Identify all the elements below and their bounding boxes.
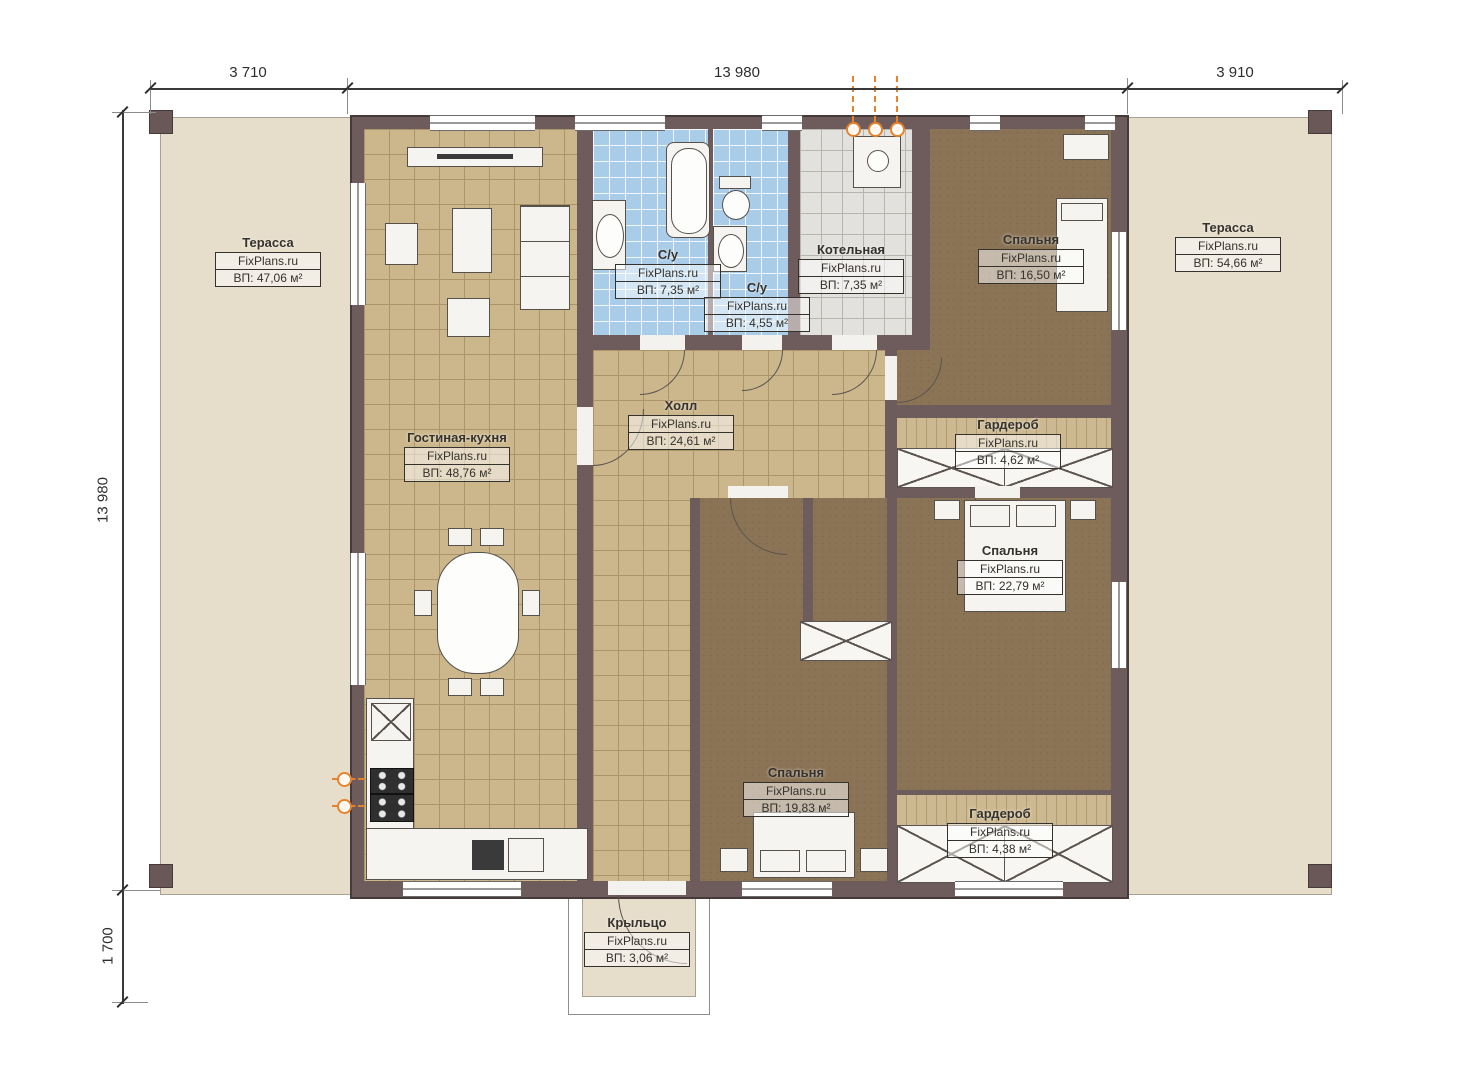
dimension-line-left xyxy=(122,110,124,1004)
window xyxy=(350,553,366,685)
room-name: Спальня xyxy=(743,765,849,780)
dimension-top-3: 3 910 xyxy=(1216,64,1254,81)
door-opening xyxy=(742,335,782,350)
room-area: ВП: 22,79 м² xyxy=(958,578,1062,594)
chair xyxy=(480,528,504,546)
wardrobe-cabinet xyxy=(1063,134,1109,160)
watermark: FixPlans.ru xyxy=(1176,238,1280,255)
window xyxy=(1111,232,1127,330)
room-area: ВП: 3,06 м² xyxy=(585,950,689,966)
coffee-table xyxy=(447,298,490,337)
room-area: ВП: 54,66 м² xyxy=(1176,255,1280,271)
door-opening xyxy=(640,335,685,350)
chair xyxy=(522,590,540,616)
pillow xyxy=(970,505,1010,527)
window xyxy=(350,183,366,305)
terrace-post xyxy=(149,864,173,888)
nightstand xyxy=(860,848,888,872)
room-label-bedroom-1: Спальня FixPlans.ru ВП: 16,50 м² xyxy=(978,232,1084,284)
room-name: Спальня xyxy=(957,543,1063,558)
watermark: FixPlans.ru xyxy=(585,933,689,950)
pillow xyxy=(1016,505,1056,527)
window xyxy=(742,881,832,897)
pillow xyxy=(760,850,800,872)
dimension-top-2: 13 980 xyxy=(714,64,760,81)
gas-connector xyxy=(337,799,352,814)
watermark: FixPlans.ru xyxy=(405,448,509,465)
room-label-hall: Холл FixPlans.ru ВП: 24,61 м² xyxy=(628,398,734,450)
window xyxy=(1085,115,1115,131)
room-label-bath-2: С/у FixPlans.ru ВП: 4,55 м² xyxy=(704,280,810,332)
chair xyxy=(480,678,504,696)
room-area: ВП: 16,50 м² xyxy=(979,267,1083,283)
pillow xyxy=(1061,203,1103,221)
watermark: FixPlans.ru xyxy=(705,298,809,315)
nightstand xyxy=(934,500,960,520)
kitchen-sink xyxy=(508,838,544,872)
watermark: FixPlans.ru xyxy=(744,783,848,800)
room-name: Терасса xyxy=(215,235,321,250)
watermark: FixPlans.ru xyxy=(216,253,320,270)
kitchen-sink-rack xyxy=(472,840,504,870)
pillow xyxy=(806,850,846,872)
dimension-line-top xyxy=(150,88,1342,90)
room-name: Гардероб xyxy=(955,417,1061,432)
watermark: FixPlans.ru xyxy=(956,435,1060,452)
watermark: FixPlans.ru xyxy=(799,260,903,277)
room-area: ВП: 24,61 м² xyxy=(629,433,733,449)
watermark: FixPlans.ru xyxy=(948,824,1052,841)
terrace-post xyxy=(149,110,173,134)
window xyxy=(575,115,665,131)
watermark: FixPlans.ru xyxy=(958,561,1062,578)
kitchen-cabinet-x xyxy=(371,703,411,741)
room-label-wardrobe-2: Гардероб FixPlans.ru ВП: 4,38 м² xyxy=(947,806,1053,858)
entrance-door-opening xyxy=(608,881,686,895)
water-heater-dial xyxy=(867,150,889,172)
room-label-wardrobe-1: Гардероб FixPlans.ru ВП: 4,62 м² xyxy=(955,417,1061,469)
gas-connector xyxy=(846,122,861,137)
terrace-left-floor xyxy=(160,117,352,895)
sink-basin xyxy=(718,234,744,268)
door-opening xyxy=(577,407,593,465)
bathtub-basin xyxy=(671,148,707,234)
dimension-extension xyxy=(347,78,348,114)
sofa xyxy=(520,205,570,310)
terrace-post xyxy=(1308,110,1332,134)
dimension-extension xyxy=(1127,78,1128,114)
room-label-living-kitchen: Гостиная-кухня FixPlans.ru ВП: 48,76 м² xyxy=(404,430,510,482)
window xyxy=(403,881,521,897)
chair xyxy=(448,528,472,546)
dimension-extension xyxy=(112,1002,148,1003)
window xyxy=(1111,582,1127,668)
room-label-bedroom-3: Спальня FixPlans.ru ВП: 19,83 м² xyxy=(743,765,849,817)
door-opening xyxy=(728,486,788,498)
room-name: С/у xyxy=(704,280,810,295)
window xyxy=(970,115,1000,131)
room-name: Спальня xyxy=(978,232,1084,247)
room-name: Котельная xyxy=(798,242,904,257)
tv xyxy=(437,154,513,159)
gas-connector xyxy=(337,772,352,787)
room-label-terrace-left: Терасса FixPlans.ru ВП: 47,06 м² xyxy=(215,235,321,287)
room-name: С/у xyxy=(615,247,721,262)
window xyxy=(955,881,1063,897)
dimension-left-1: 13 980 xyxy=(95,477,112,523)
room-label-bedroom-2: Спальня FixPlans.ru ВП: 22,79 м² xyxy=(957,543,1063,595)
room-name: Холл xyxy=(628,398,734,413)
watermark: FixPlans.ru xyxy=(629,416,733,433)
stove xyxy=(370,794,414,822)
dimension-top-1: 3 710 xyxy=(229,64,267,81)
room-name: Гардероб xyxy=(947,806,1053,821)
room-name: Крыльцо xyxy=(584,915,690,930)
dimension-left-2: 1 700 xyxy=(100,927,117,965)
door-opening xyxy=(885,356,897,400)
watermark: FixPlans.ru xyxy=(979,250,1083,267)
floor-plan: Терасса FixPlans.ru ВП: 47,06 м² Гостина… xyxy=(0,0,1473,1080)
chair xyxy=(448,678,472,696)
room-name: Гостиная-кухня xyxy=(404,430,510,445)
toilet-tank xyxy=(719,176,751,189)
room-area: ВП: 47,06 м² xyxy=(216,270,320,286)
gas-connector xyxy=(868,122,883,137)
gas-connector xyxy=(890,122,905,137)
terrace-post xyxy=(1308,864,1332,888)
chair xyxy=(414,590,432,616)
door-opening xyxy=(975,486,1020,498)
bedroom-3-closet xyxy=(800,621,892,661)
nightstand xyxy=(1070,500,1096,520)
room-label-porch: Крыльцо FixPlans.ru ВП: 3,06 м² xyxy=(584,915,690,967)
stove xyxy=(370,768,414,794)
dining-table xyxy=(437,552,519,674)
armchair xyxy=(452,208,492,273)
room-area: ВП: 4,38 м² xyxy=(948,841,1052,857)
window xyxy=(430,115,535,131)
room-label-boiler: Котельная FixPlans.ru ВП: 7,35 м² xyxy=(798,242,904,294)
nightstand xyxy=(720,848,748,872)
room-name: Терасса xyxy=(1175,220,1281,235)
bedroom-3-partition xyxy=(803,498,813,621)
room-area: ВП: 48,76 м² xyxy=(405,465,509,481)
room-label-terrace-right: Терасса FixPlans.ru ВП: 54,66 м² xyxy=(1175,220,1281,272)
cabinet xyxy=(385,223,418,265)
room-area: ВП: 4,55 м² xyxy=(705,315,809,331)
door-opening xyxy=(832,335,877,350)
room-area: ВП: 19,83 м² xyxy=(744,800,848,816)
window xyxy=(762,115,802,131)
room-area: ВП: 4,62 м² xyxy=(956,452,1060,468)
room-area: ВП: 7,35 м² xyxy=(799,277,903,293)
toilet-bowl xyxy=(722,190,750,220)
